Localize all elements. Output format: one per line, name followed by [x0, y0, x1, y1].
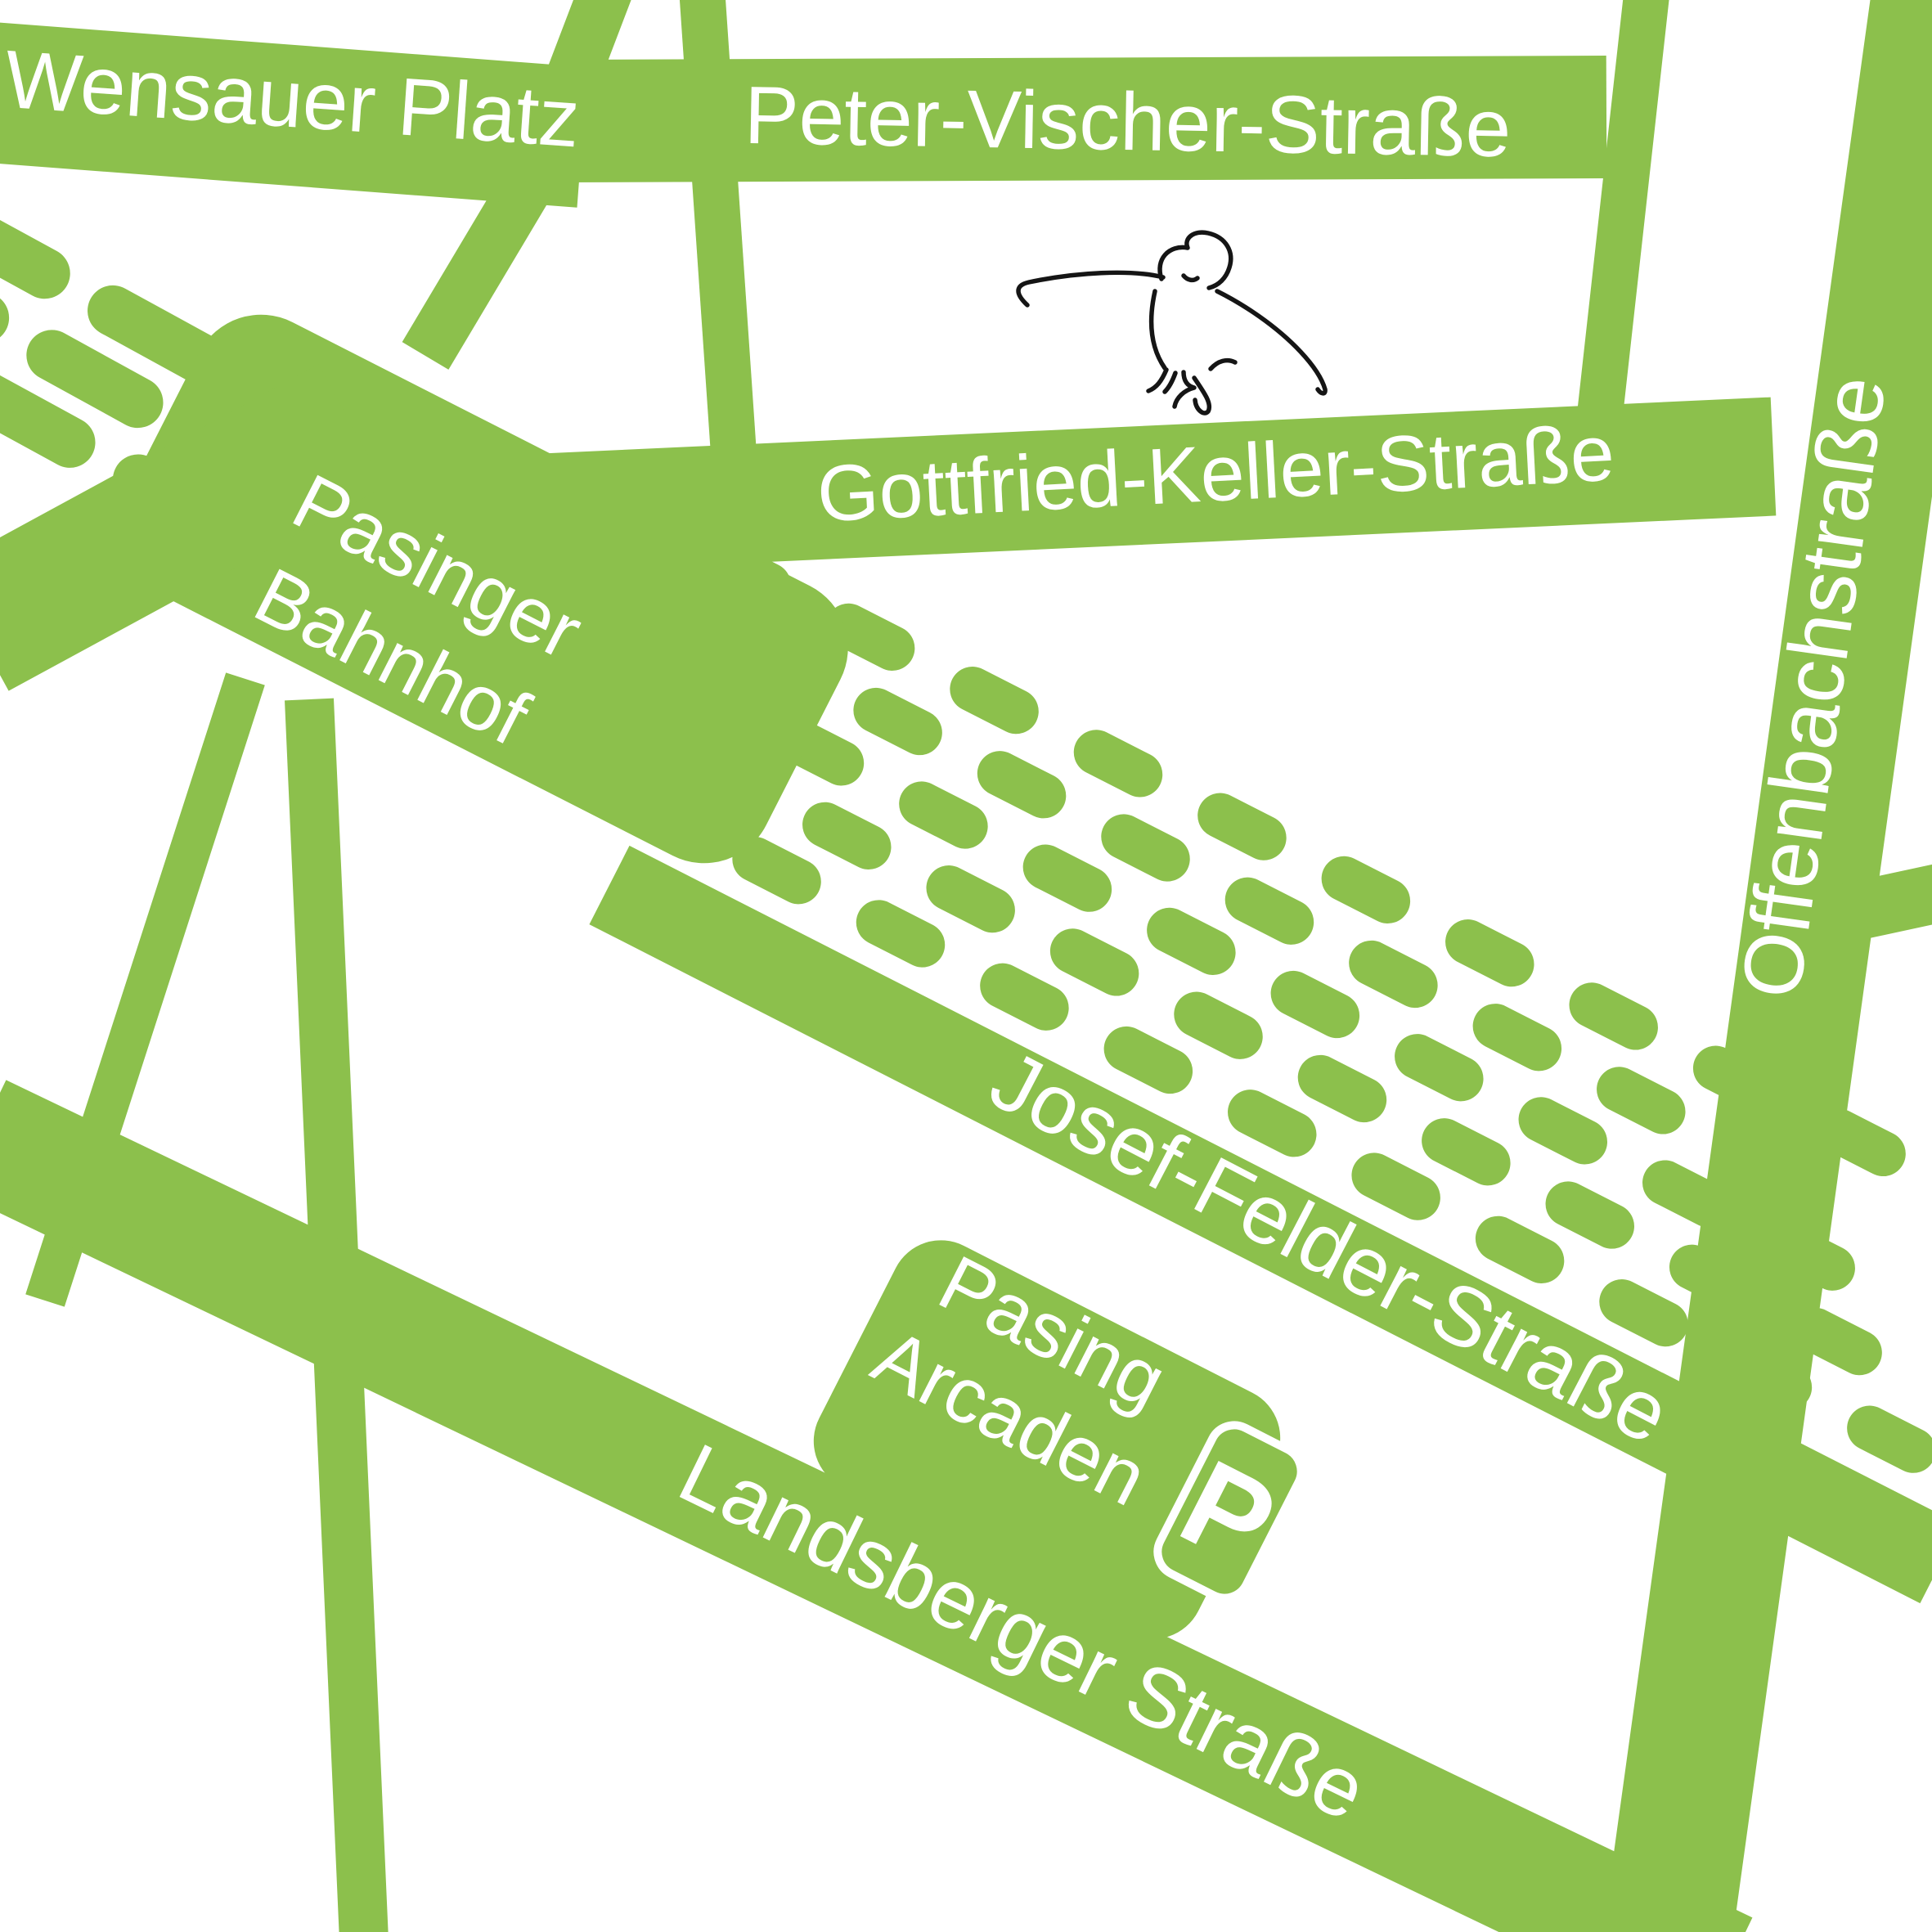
bird-right-wing [1217, 291, 1325, 393]
label-peter-vischer-strasse: Peter-Vischer-Straße [744, 70, 1512, 174]
bird-left-wing [1018, 272, 1163, 305]
bird-eye-mark [1184, 276, 1197, 280]
bird-sketch-icon [1018, 232, 1325, 413]
bird-tail-feet [1148, 370, 1209, 413]
bird-wing-notch [1211, 361, 1235, 369]
map-canvas: P Wensauer Platz Peter-Vischer-Straße Go… [0, 0, 1932, 1932]
road-offenbachstrasse-branch [1832, 893, 1932, 916]
pasing-map: P Wensauer Platz Peter-Vischer-Straße Go… [0, 0, 1932, 1932]
bird-body [1152, 291, 1165, 368]
